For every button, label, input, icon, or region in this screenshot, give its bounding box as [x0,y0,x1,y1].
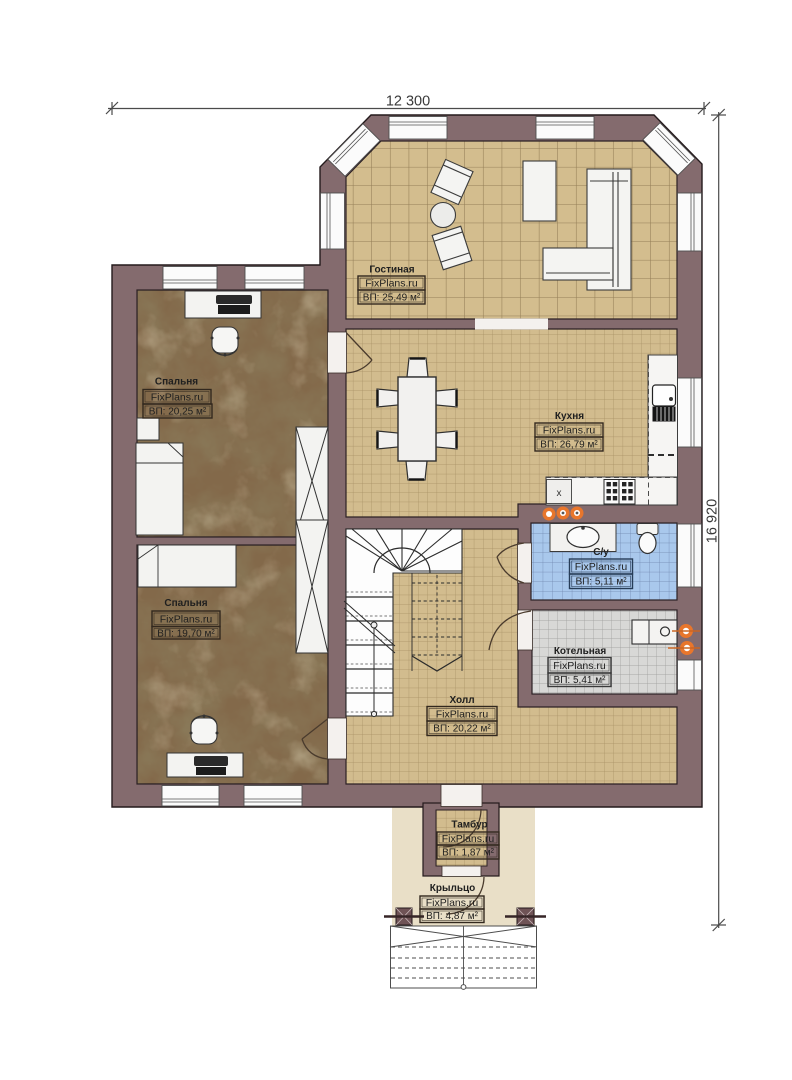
svg-text:Гостиная: Гостиная [369,265,414,276]
svg-text:ВП: 19,70 м²: ВП: 19,70 м² [157,629,215,640]
svg-text:ВП: 4,87 м²: ВП: 4,87 м² [426,911,479,922]
svg-text:FixPlans.ru: FixPlans.ru [426,897,479,909]
svg-text:12 300: 12 300 [386,94,430,110]
svg-text:ВП: 5,41 м²: ВП: 5,41 м² [554,675,607,686]
svg-text:Кухня: Кухня [555,411,584,422]
svg-text:С/у: С/у [593,547,609,558]
svg-text:Спальня: Спальня [155,377,198,388]
svg-text:ВП: 20,22 м²: ВП: 20,22 м² [433,724,491,735]
svg-text:FixPlans.ru: FixPlans.ru [575,561,628,573]
svg-text:ВП: 5,11 м²: ВП: 5,11 м² [575,577,627,588]
svg-text:FixPlans.ru: FixPlans.ru [151,392,204,404]
svg-text:Холл: Холл [449,695,474,706]
svg-text:FixPlans.ru: FixPlans.ru [543,425,596,437]
svg-text:Спальня: Спальня [164,598,207,609]
svg-text:16 920: 16 920 [705,499,721,543]
svg-text:Тамбур: Тамбур [451,819,487,831]
svg-text:ВП: 25,49 м²: ВП: 25,49 м² [363,293,421,304]
svg-text:Котельная: Котельная [554,646,607,657]
svg-text:FixPlans.ru: FixPlans.ru [436,709,489,721]
svg-text:FixPlans.ru: FixPlans.ru [553,660,606,672]
svg-text:FixPlans.ru: FixPlans.ru [160,614,213,626]
svg-text:ВП: 20,25 м²: ВП: 20,25 м² [149,407,207,418]
svg-text:Крыльцо: Крыльцо [430,883,476,894]
svg-text:ВП: 1,87 м²: ВП: 1,87 м² [442,848,495,859]
svg-text:FixPlans.ru: FixPlans.ru [365,278,418,290]
svg-text:ВП: 26,79 м²: ВП: 26,79 м² [540,440,598,451]
svg-text:FixPlans.ru: FixPlans.ru [442,833,495,845]
svg-text:x: x [557,488,562,499]
